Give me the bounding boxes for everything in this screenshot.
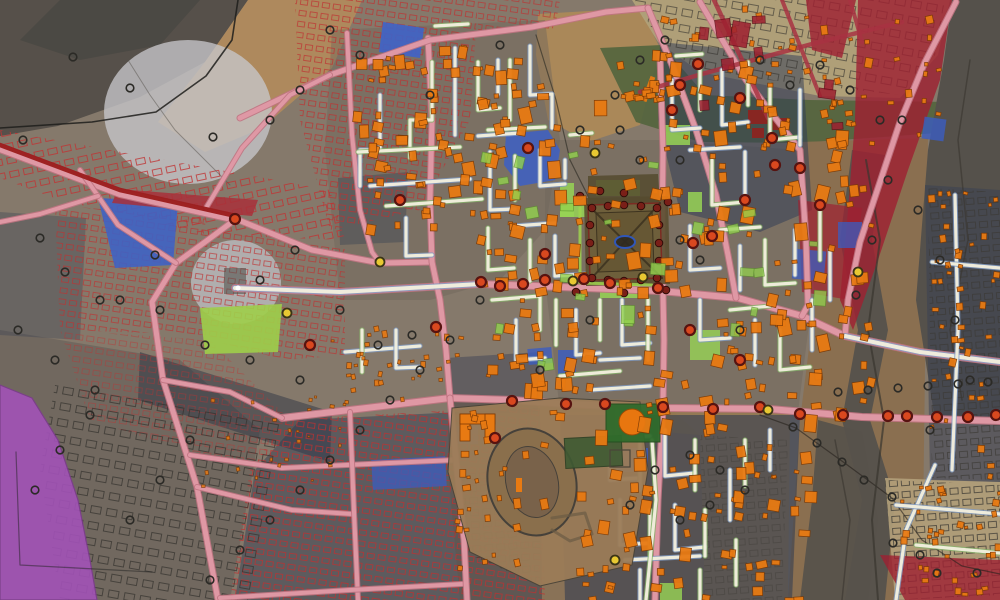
red-node-marker xyxy=(675,80,685,90)
building xyxy=(809,373,822,386)
building xyxy=(747,124,751,129)
building xyxy=(586,383,594,392)
building xyxy=(653,378,665,387)
building xyxy=(476,235,486,246)
white-street xyxy=(435,24,468,26)
building xyxy=(608,143,614,148)
building xyxy=(547,161,561,179)
red-node-marker xyxy=(653,283,663,293)
building xyxy=(460,469,466,477)
building xyxy=(591,168,598,175)
building xyxy=(986,335,992,339)
building xyxy=(747,75,758,85)
building xyxy=(453,153,463,163)
building xyxy=(514,559,521,567)
building xyxy=(955,248,960,253)
building xyxy=(365,342,370,346)
building xyxy=(439,46,450,56)
building xyxy=(386,56,391,61)
building xyxy=(786,141,796,152)
building xyxy=(957,286,964,292)
building xyxy=(409,151,417,162)
yellow-node-marker xyxy=(764,406,773,415)
building xyxy=(588,572,594,577)
building xyxy=(491,103,498,110)
building xyxy=(278,463,281,467)
building xyxy=(555,190,567,205)
building xyxy=(534,333,540,341)
building xyxy=(806,303,812,309)
building xyxy=(484,65,495,77)
yellow-node-marker xyxy=(591,149,600,158)
building xyxy=(716,509,722,513)
building xyxy=(424,355,429,360)
building xyxy=(680,285,692,298)
building xyxy=(545,139,555,148)
white-street xyxy=(676,54,702,56)
building xyxy=(750,40,755,46)
building xyxy=(772,475,777,479)
building xyxy=(417,182,423,187)
building xyxy=(711,354,725,368)
red-node-marker xyxy=(476,277,486,287)
building xyxy=(507,69,519,80)
building xyxy=(451,68,460,78)
building xyxy=(480,420,487,429)
building xyxy=(861,95,866,98)
building xyxy=(955,588,961,595)
building xyxy=(797,320,806,330)
red-node-marker xyxy=(540,275,550,285)
red-node-marker xyxy=(523,143,533,153)
building xyxy=(659,89,665,96)
building xyxy=(937,486,944,493)
red-node-marker xyxy=(507,396,517,406)
building xyxy=(201,485,205,488)
building xyxy=(457,46,468,59)
building xyxy=(363,360,368,366)
building xyxy=(905,89,912,97)
building xyxy=(519,364,525,370)
building xyxy=(481,177,493,187)
building xyxy=(347,363,352,369)
building xyxy=(346,374,351,377)
building xyxy=(965,348,972,356)
building xyxy=(666,75,672,81)
building xyxy=(634,458,646,471)
building xyxy=(525,206,539,219)
building xyxy=(710,154,716,159)
building xyxy=(461,451,469,457)
building xyxy=(412,377,415,380)
building xyxy=(657,568,664,575)
building xyxy=(308,436,310,437)
building xyxy=(743,209,756,218)
building xyxy=(938,191,942,196)
building xyxy=(839,334,844,339)
building xyxy=(828,245,835,252)
building xyxy=(226,436,230,440)
building xyxy=(683,135,688,139)
building xyxy=(977,396,984,401)
building xyxy=(936,68,941,72)
building xyxy=(693,145,701,152)
building xyxy=(976,524,982,530)
yellow-node-marker xyxy=(611,556,620,565)
building xyxy=(801,476,812,484)
building xyxy=(674,506,685,517)
building xyxy=(715,493,721,497)
building xyxy=(382,330,388,338)
building xyxy=(932,279,937,284)
building xyxy=(368,178,373,182)
building xyxy=(589,596,597,600)
building xyxy=(285,458,289,461)
building xyxy=(495,323,504,334)
building xyxy=(783,185,793,195)
building xyxy=(944,418,948,422)
building xyxy=(369,78,374,82)
building xyxy=(339,427,341,429)
building xyxy=(772,560,780,565)
building xyxy=(338,444,341,447)
building xyxy=(700,513,707,521)
building xyxy=(396,136,408,146)
building xyxy=(378,380,383,385)
building xyxy=(894,57,900,62)
building xyxy=(494,94,499,99)
building xyxy=(669,119,678,128)
building xyxy=(809,321,816,327)
building xyxy=(708,456,715,463)
building xyxy=(509,204,521,215)
building xyxy=(948,358,957,367)
building xyxy=(455,353,459,357)
building xyxy=(353,111,362,122)
building xyxy=(647,410,652,414)
building xyxy=(701,130,709,136)
building xyxy=(925,15,934,24)
building xyxy=(601,236,606,241)
white-street xyxy=(600,358,640,360)
building xyxy=(768,357,775,365)
building xyxy=(495,70,507,84)
building xyxy=(465,133,475,141)
building xyxy=(607,499,614,505)
building xyxy=(540,498,549,510)
red-node-marker xyxy=(490,433,500,443)
building xyxy=(727,224,739,235)
red-node-marker xyxy=(883,411,893,421)
building xyxy=(888,101,894,105)
building xyxy=(809,241,817,246)
red-node-marker xyxy=(795,409,805,419)
building xyxy=(372,121,384,132)
building xyxy=(993,197,998,202)
building xyxy=(510,224,526,239)
building xyxy=(410,360,414,363)
building xyxy=(717,278,727,292)
building xyxy=(660,16,669,24)
building xyxy=(448,185,461,198)
building xyxy=(834,78,841,85)
red-node-marker xyxy=(518,279,528,289)
red-node-marker xyxy=(991,410,1000,420)
building xyxy=(456,526,463,533)
building xyxy=(702,594,710,600)
map-canvas[interactable] xyxy=(0,0,1000,600)
building xyxy=(514,58,522,65)
building xyxy=(644,351,655,366)
building xyxy=(978,445,985,452)
building xyxy=(640,499,653,514)
building xyxy=(529,100,537,107)
building xyxy=(626,251,642,270)
building xyxy=(236,467,240,471)
red-node-marker xyxy=(605,278,615,288)
building xyxy=(742,6,747,12)
red-node-marker xyxy=(740,195,750,205)
building xyxy=(753,267,764,277)
building xyxy=(751,322,761,333)
building xyxy=(859,185,866,192)
building xyxy=(455,519,460,524)
building xyxy=(849,38,853,41)
building xyxy=(464,528,469,532)
building xyxy=(491,213,501,219)
building xyxy=(992,511,998,517)
building xyxy=(981,233,986,239)
building xyxy=(932,379,936,381)
building xyxy=(650,583,662,592)
building xyxy=(943,494,947,496)
building xyxy=(581,535,593,548)
building xyxy=(648,162,658,169)
building xyxy=(970,243,975,247)
red-node-marker xyxy=(667,105,677,115)
building xyxy=(467,507,471,511)
building xyxy=(520,309,532,318)
building xyxy=(516,354,528,364)
building xyxy=(852,381,865,394)
building xyxy=(537,351,543,358)
building xyxy=(969,395,974,400)
red-node-marker xyxy=(495,281,505,291)
building xyxy=(670,467,676,472)
building xyxy=(512,190,521,200)
building xyxy=(722,566,727,569)
red-node-marker xyxy=(561,399,571,409)
building xyxy=(804,16,809,19)
building xyxy=(670,19,677,25)
red-node-marker xyxy=(735,93,745,103)
building xyxy=(512,90,522,98)
building xyxy=(936,112,941,116)
building xyxy=(420,67,427,75)
building xyxy=(813,290,826,306)
building xyxy=(493,335,500,341)
building xyxy=(485,515,491,522)
red-node-marker xyxy=(658,402,668,412)
building xyxy=(640,536,653,551)
building xyxy=(594,100,607,116)
building xyxy=(388,65,395,70)
building xyxy=(840,176,848,187)
building xyxy=(482,559,487,564)
building xyxy=(838,100,844,106)
building xyxy=(992,499,1000,506)
building xyxy=(750,307,758,316)
building xyxy=(617,288,622,296)
building xyxy=(405,61,414,70)
building xyxy=(979,382,983,386)
building xyxy=(513,498,521,509)
yellow-node-marker xyxy=(569,277,578,286)
building xyxy=(623,564,630,572)
building xyxy=(729,549,736,557)
building xyxy=(331,340,334,342)
plaza-dot-marker xyxy=(586,221,594,229)
building xyxy=(642,485,653,497)
building xyxy=(731,348,738,353)
yellow-node-marker xyxy=(639,273,648,282)
building xyxy=(928,195,935,203)
building xyxy=(860,333,869,341)
building xyxy=(958,264,963,268)
building xyxy=(423,208,430,214)
building xyxy=(608,586,613,590)
building xyxy=(864,322,872,331)
building xyxy=(917,132,921,137)
building xyxy=(474,450,478,455)
building xyxy=(689,512,697,520)
building xyxy=(770,315,783,326)
building xyxy=(734,512,744,521)
building xyxy=(823,75,826,79)
building xyxy=(987,474,992,480)
building xyxy=(684,529,691,538)
building xyxy=(805,491,817,503)
red-node-marker xyxy=(431,322,441,332)
building xyxy=(699,27,709,40)
building xyxy=(439,378,443,381)
building xyxy=(488,365,498,375)
building xyxy=(804,282,812,289)
building xyxy=(666,53,673,58)
building xyxy=(473,66,481,75)
building xyxy=(646,92,655,98)
building xyxy=(645,306,651,311)
building xyxy=(621,94,626,98)
yellow-node-marker xyxy=(854,268,863,277)
building xyxy=(623,178,637,191)
building xyxy=(753,587,763,596)
building xyxy=(588,186,598,194)
building xyxy=(719,172,727,182)
building xyxy=(768,83,773,87)
building xyxy=(546,214,557,226)
building xyxy=(369,143,377,152)
building xyxy=(860,398,867,404)
map-viewport[interactable] xyxy=(0,0,1000,600)
building xyxy=(729,20,751,47)
building xyxy=(660,418,673,435)
building xyxy=(665,270,678,283)
building xyxy=(794,597,804,600)
building xyxy=(575,293,585,300)
red-node-marker xyxy=(815,200,825,210)
building xyxy=(462,484,471,491)
building xyxy=(598,520,610,535)
building xyxy=(503,467,508,471)
building xyxy=(838,315,848,324)
building xyxy=(373,59,383,69)
building xyxy=(963,191,968,195)
building xyxy=(354,364,358,367)
red-node-marker xyxy=(707,231,717,241)
building xyxy=(756,100,763,107)
red-node-marker xyxy=(305,340,315,350)
building xyxy=(594,140,600,145)
building xyxy=(650,188,663,201)
building xyxy=(351,374,356,380)
building xyxy=(756,572,765,581)
building xyxy=(724,333,728,336)
building xyxy=(468,426,472,430)
building xyxy=(704,227,709,232)
building xyxy=(679,547,691,562)
building xyxy=(785,290,790,296)
building xyxy=(717,319,728,328)
building xyxy=(814,271,828,283)
building xyxy=(535,287,548,297)
building xyxy=(826,137,837,149)
building xyxy=(400,397,404,402)
building xyxy=(537,84,544,90)
building xyxy=(351,388,356,393)
building xyxy=(440,202,445,207)
building xyxy=(626,283,632,288)
plaza-dot-marker xyxy=(653,274,661,282)
building xyxy=(952,578,957,583)
building xyxy=(595,430,607,445)
building xyxy=(568,322,578,332)
building xyxy=(901,500,904,503)
building xyxy=(379,77,386,83)
building xyxy=(460,174,470,185)
building xyxy=(504,323,515,334)
plaza-center-pool xyxy=(615,236,635,248)
building xyxy=(745,392,752,399)
building xyxy=(746,563,753,571)
red-node-marker xyxy=(708,404,718,414)
building xyxy=(251,401,254,405)
building xyxy=(991,279,994,283)
building xyxy=(927,535,931,539)
building xyxy=(307,408,311,411)
building xyxy=(646,326,657,335)
building xyxy=(692,34,699,42)
building xyxy=(869,223,875,228)
building xyxy=(431,108,436,113)
building xyxy=(387,363,392,368)
building xyxy=(309,398,312,402)
building xyxy=(273,418,277,421)
building xyxy=(537,360,545,366)
building xyxy=(652,50,660,61)
building xyxy=(925,63,928,66)
building xyxy=(740,61,748,68)
